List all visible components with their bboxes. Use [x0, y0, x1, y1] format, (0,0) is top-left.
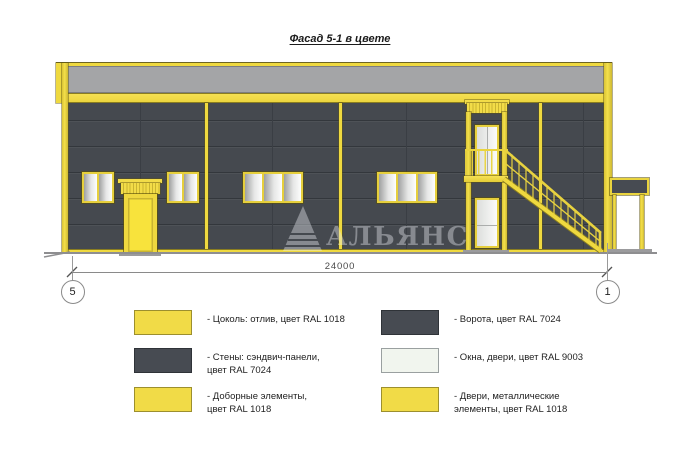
color-swatch	[381, 387, 439, 412]
legend-item: - Двери, металлические элементы, цвет RA…	[381, 387, 567, 416]
color-swatch	[381, 348, 439, 373]
legend-item: - Ворота, цвет RAL 7024	[381, 310, 561, 335]
legend-item: - Доборные элементы, цвет RAL 1018	[134, 387, 307, 416]
legend-label: - Двери, металлические элементы, цвет RA…	[454, 387, 567, 416]
color-swatch	[134, 348, 192, 373]
color-swatch	[134, 387, 192, 412]
legend-label: - Доборные элементы, цвет RAL 1018	[207, 387, 307, 416]
legend-label: - Стены: сэндвич-панели, цвет RAL 7024	[207, 348, 320, 377]
axis-marker-5: 5	[61, 280, 85, 304]
color-swatch	[134, 310, 192, 335]
extension-line	[607, 243, 608, 281]
legend-item: - Окна, двери, цвет RAL 9003	[381, 348, 583, 373]
alliance-logo-icon	[283, 206, 322, 251]
extension-line	[72, 256, 73, 281]
legend-item: - Цоколь: отлив, цвет RAL 1018	[134, 310, 345, 335]
drawing-canvas: Фасад 5-1 в цвете	[0, 0, 700, 474]
legend-item: - Стены: сэндвич-панели, цвет RAL 7024	[134, 348, 320, 377]
fire-escape-stairs	[504, 150, 601, 251]
legend-label: - Цоколь: отлив, цвет RAL 1018	[207, 310, 345, 327]
alliance-watermark: АЛЬЯНС	[326, 222, 469, 252]
legend-label: - Ворота, цвет RAL 7024	[454, 310, 561, 327]
dimension-label: 24000	[300, 261, 380, 272]
axis-marker-1: 1	[596, 280, 620, 304]
color-swatch	[381, 310, 439, 335]
legend-label: - Окна, двери, цвет RAL 9003	[454, 348, 583, 365]
